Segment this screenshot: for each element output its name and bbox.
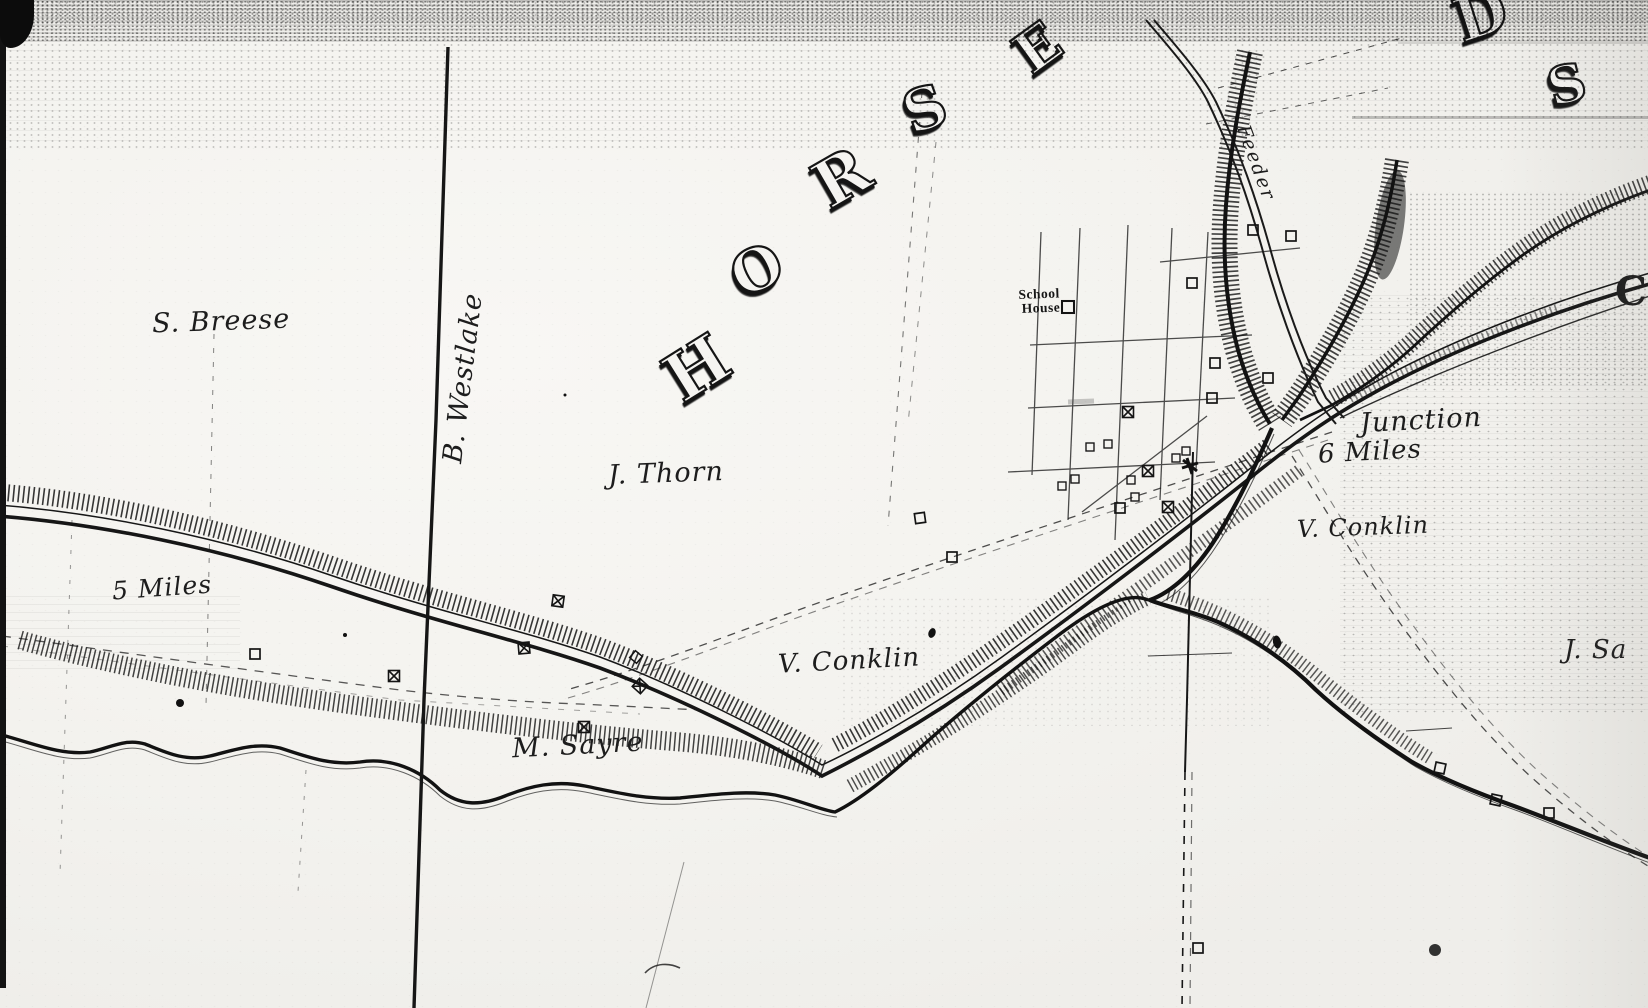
label-j-sa-partial: J. Sa [1564,635,1627,665]
label-j-thorn: J. Thorn [607,456,724,491]
scan-edge-bar [0,0,6,988]
label-v-conklin-east: V. Conklin [1297,511,1430,544]
north-south-road [414,47,448,1008]
illegible-street-label-smudge [1068,399,1094,405]
building-marker-school [1062,301,1074,313]
village-street-grid [1008,225,1300,540]
edge-letter-c: C [1615,268,1647,315]
label-school-house: School House [975,287,1061,318]
label-school-line2: House [975,301,1060,318]
building-markers [250,225,1554,953]
label-s-breese: S. Breese [152,304,291,340]
map-scan-page: H O R S E D S C S. Breese B. Westlake J.… [0,0,1648,1008]
label-6-miles: 6 Miles [1317,434,1422,469]
